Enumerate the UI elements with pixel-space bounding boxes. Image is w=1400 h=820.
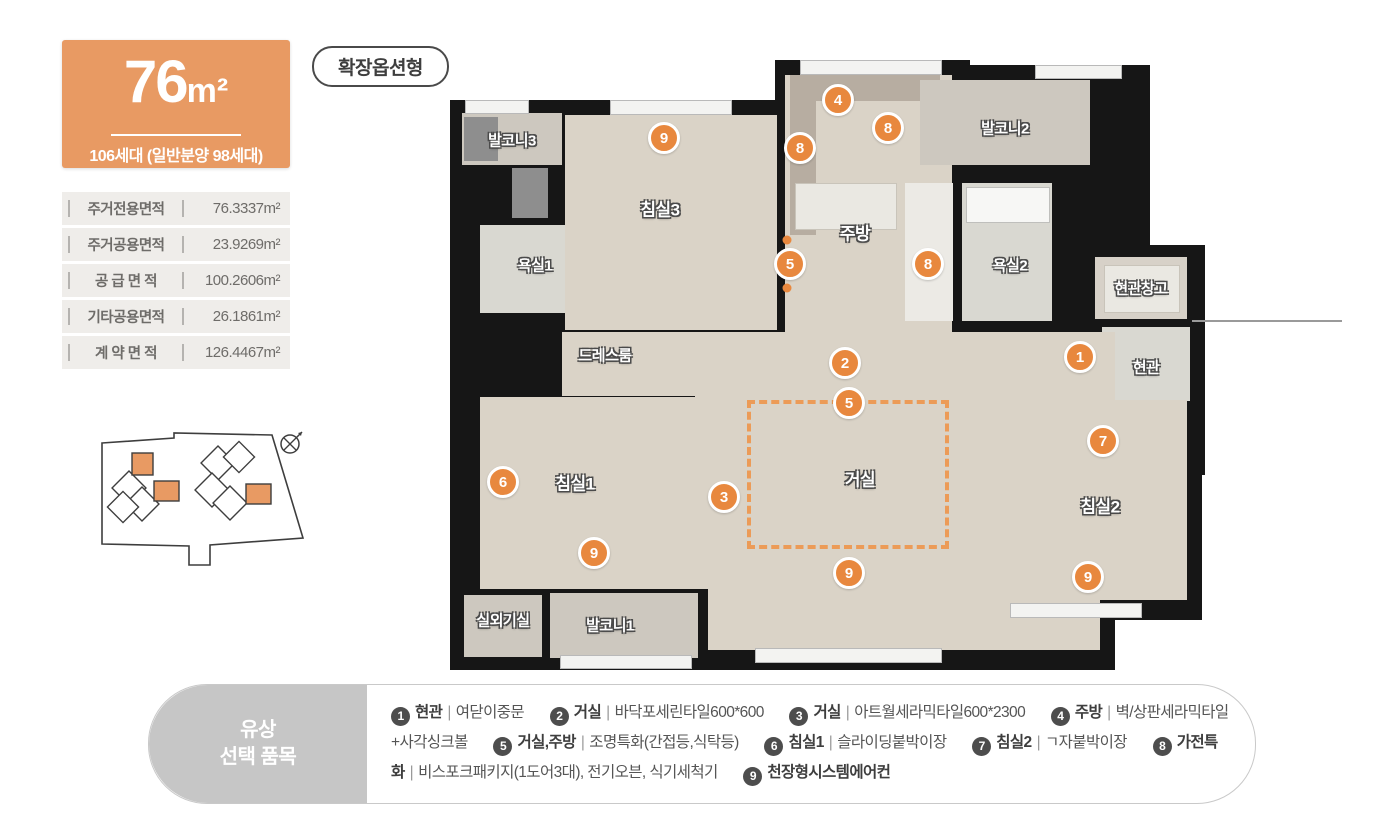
area-value: 100.2606m² bbox=[184, 272, 284, 289]
legend-item: 3거실|아트월세라믹타일600*2300 bbox=[789, 704, 1025, 721]
option-marker: 1 bbox=[1064, 341, 1096, 373]
room-label: 주방 bbox=[840, 220, 870, 245]
area-value: 23.9269m² bbox=[184, 236, 284, 253]
legend-separator: | bbox=[581, 734, 584, 751]
legend-item-label: 천장형시스템에어컨 bbox=[767, 764, 890, 781]
legend-item-number: 8 bbox=[1153, 737, 1172, 756]
building-highlighted bbox=[154, 481, 179, 501]
room-label: 침실2 bbox=[1080, 493, 1119, 518]
area-label: 공 급 면 적 bbox=[70, 270, 182, 291]
legend-separator: | bbox=[829, 734, 832, 751]
legend-separator: | bbox=[410, 764, 413, 781]
legend-item-desc: 여닫이중문 bbox=[456, 704, 524, 721]
unit-size-badge: 76m² 106세대 (일반분양 98세대) bbox=[62, 40, 290, 168]
room-label: 욕실2 bbox=[993, 255, 1027, 276]
area-table-row: 기타공용면적 26.1861m² bbox=[62, 300, 290, 333]
legend-item-desc: 조명특화(간접등,식탁등) bbox=[589, 734, 738, 751]
window bbox=[755, 648, 942, 663]
legend-title: 유상 선택 품목 bbox=[149, 685, 367, 803]
legend-title-line1: 유상 bbox=[240, 717, 276, 744]
room-label: 현관 bbox=[1133, 357, 1160, 378]
room-label: 드레스룸 bbox=[578, 345, 631, 366]
legend-separator: | bbox=[606, 704, 609, 721]
option-marker: 9 bbox=[1072, 561, 1104, 593]
legend-item-number: 1 bbox=[391, 707, 410, 726]
legend-item: 6침실1|슬라이딩붙박이장 bbox=[764, 734, 946, 751]
bathtub bbox=[966, 187, 1050, 223]
legend-item-number: 7 bbox=[972, 737, 991, 756]
option-marker: 3 bbox=[708, 481, 740, 513]
room-label: 발코니1 bbox=[586, 615, 634, 636]
lighting-dot bbox=[783, 284, 792, 293]
legend-item-label: 주방 bbox=[1075, 704, 1102, 721]
option-marker: 8 bbox=[784, 132, 816, 164]
legend-item-desc: 슬라이딩붙박이장 bbox=[837, 734, 946, 751]
legend-item-label: 거실 bbox=[574, 704, 601, 721]
room-label: 발코니3 bbox=[488, 130, 536, 151]
legend-separator: | bbox=[1107, 704, 1110, 721]
area-label: 주거전용면적 bbox=[70, 198, 182, 219]
room-label: 욕실1 bbox=[518, 255, 552, 276]
option-marker: 7 bbox=[1087, 425, 1119, 457]
option-type-badge: 확장옵션형 bbox=[312, 46, 449, 87]
legend-item-number: 6 bbox=[764, 737, 783, 756]
option-marker: 9 bbox=[578, 537, 610, 569]
legend-separator: | bbox=[1037, 734, 1040, 751]
option-marker: 9 bbox=[833, 557, 865, 589]
window bbox=[1010, 603, 1142, 618]
utility-shaft bbox=[512, 168, 548, 218]
unit-size: 76m² bbox=[62, 50, 290, 130]
area-table-row: 계 약 면 적 126.4467m² bbox=[62, 336, 290, 369]
legend-item-label: 거실 bbox=[813, 704, 840, 721]
room-label: 현관창고 bbox=[1114, 278, 1167, 299]
unit-size-unit: m² bbox=[187, 72, 229, 110]
option-marker: 6 bbox=[487, 466, 519, 498]
entry-line bbox=[1192, 320, 1342, 322]
legend-separator: | bbox=[447, 704, 450, 721]
area-value: 126.4467m² bbox=[184, 344, 284, 361]
legend-item-desc: 비스포크패키지(1도어3대), 전기오븐, 식기세척기 bbox=[418, 764, 718, 781]
corridor bbox=[695, 332, 1115, 400]
room-label: 실외기실 bbox=[476, 610, 529, 631]
divider bbox=[111, 134, 241, 136]
legend-item-number: 5 bbox=[493, 737, 512, 756]
legend-item-desc: ㄱ자붙박이장 bbox=[1045, 734, 1127, 751]
option-marker: 5 bbox=[774, 248, 806, 280]
option-marker: 9 bbox=[648, 122, 680, 154]
window bbox=[465, 100, 529, 114]
area-value: 26.1861m² bbox=[184, 308, 284, 325]
area-label: 기타공용면적 bbox=[70, 306, 182, 327]
room-label: 침실3 bbox=[640, 196, 679, 221]
site-plan-svg bbox=[90, 418, 305, 593]
window bbox=[800, 60, 942, 75]
option-marker: 5 bbox=[833, 387, 865, 419]
area-table: 주거전용면적 76.3337m² 주거공용면적 23.9269m² 공 급 면 … bbox=[62, 192, 290, 372]
legend-item: 1현관|여닫이중문 bbox=[391, 704, 524, 721]
building-highlighted bbox=[246, 484, 271, 504]
households-count: 106세대 (일반분양 98세대) bbox=[62, 142, 290, 166]
room-label: 거실 bbox=[845, 466, 875, 491]
legend-item-label: 침실2 bbox=[996, 734, 1031, 751]
option-marker: 4 bbox=[822, 84, 854, 116]
legend-separator: | bbox=[846, 704, 849, 721]
building-highlighted bbox=[132, 453, 153, 475]
legend-item: 7침실2|ㄱ자붙박이장 bbox=[972, 734, 1127, 751]
legend-item-label: 현관 bbox=[415, 704, 442, 721]
legend-item-number: 9 bbox=[743, 767, 762, 786]
option-marker: 8 bbox=[912, 248, 944, 280]
compass-icon bbox=[281, 432, 302, 453]
site-plan-map bbox=[90, 418, 305, 593]
legend-item: 9천장형시스템에어컨 bbox=[743, 764, 890, 781]
window bbox=[610, 100, 732, 115]
window bbox=[1035, 65, 1122, 79]
legend-items: 1현관|여닫이중문 2거실|바닥포세린타일600*600 3거실|아트월세라믹타… bbox=[391, 698, 1241, 788]
lighting-dot bbox=[783, 236, 792, 245]
window bbox=[560, 655, 692, 669]
area-label: 계 약 면 적 bbox=[70, 342, 182, 363]
option-marker: 8 bbox=[872, 112, 904, 144]
legend-item-number: 2 bbox=[550, 707, 569, 726]
legend-item-number: 4 bbox=[1051, 707, 1070, 726]
area-value: 76.3337m² bbox=[184, 200, 284, 217]
page: 76m² 106세대 (일반분양 98세대) 주거전용면적 76.3337m² … bbox=[0, 0, 1400, 820]
area-label: 주거공용면적 bbox=[70, 234, 182, 255]
area-table-row: 주거전용면적 76.3337m² bbox=[62, 192, 290, 225]
legend-item-label: 거실,주방 bbox=[517, 734, 575, 751]
legend-item-number: 3 bbox=[789, 707, 808, 726]
legend-item-desc: 바닥포세린타일600*600 bbox=[615, 704, 764, 721]
area-table-row: 주거공용면적 23.9269m² bbox=[62, 228, 290, 261]
paid-options-legend: 유상 선택 품목 1현관|여닫이중문 2거실|바닥포세린타일600*600 3거… bbox=[148, 684, 1256, 804]
legend-item-desc: 아트월세라믹타일600*2300 bbox=[854, 704, 1025, 721]
unit-size-number: 76 bbox=[124, 48, 187, 115]
legend-item: 5거실,주방|조명특화(간접등,식탁등) bbox=[493, 734, 738, 751]
floor-plan: 발코니3 침실3 주방 발코니2 욕실1 욕실2 현관창고 현관 드레스룸 침실… bbox=[450, 55, 1240, 670]
room-label: 발코니2 bbox=[981, 118, 1029, 139]
legend-title-line2: 선택 품목 bbox=[220, 744, 297, 771]
option-marker: 2 bbox=[829, 347, 861, 379]
legend-item-label: 침실1 bbox=[788, 734, 823, 751]
room-label: 침실1 bbox=[555, 470, 594, 495]
legend-item: 2거실|바닥포세린타일600*600 bbox=[550, 704, 764, 721]
area-table-row: 공 급 면 적 100.2606m² bbox=[62, 264, 290, 297]
